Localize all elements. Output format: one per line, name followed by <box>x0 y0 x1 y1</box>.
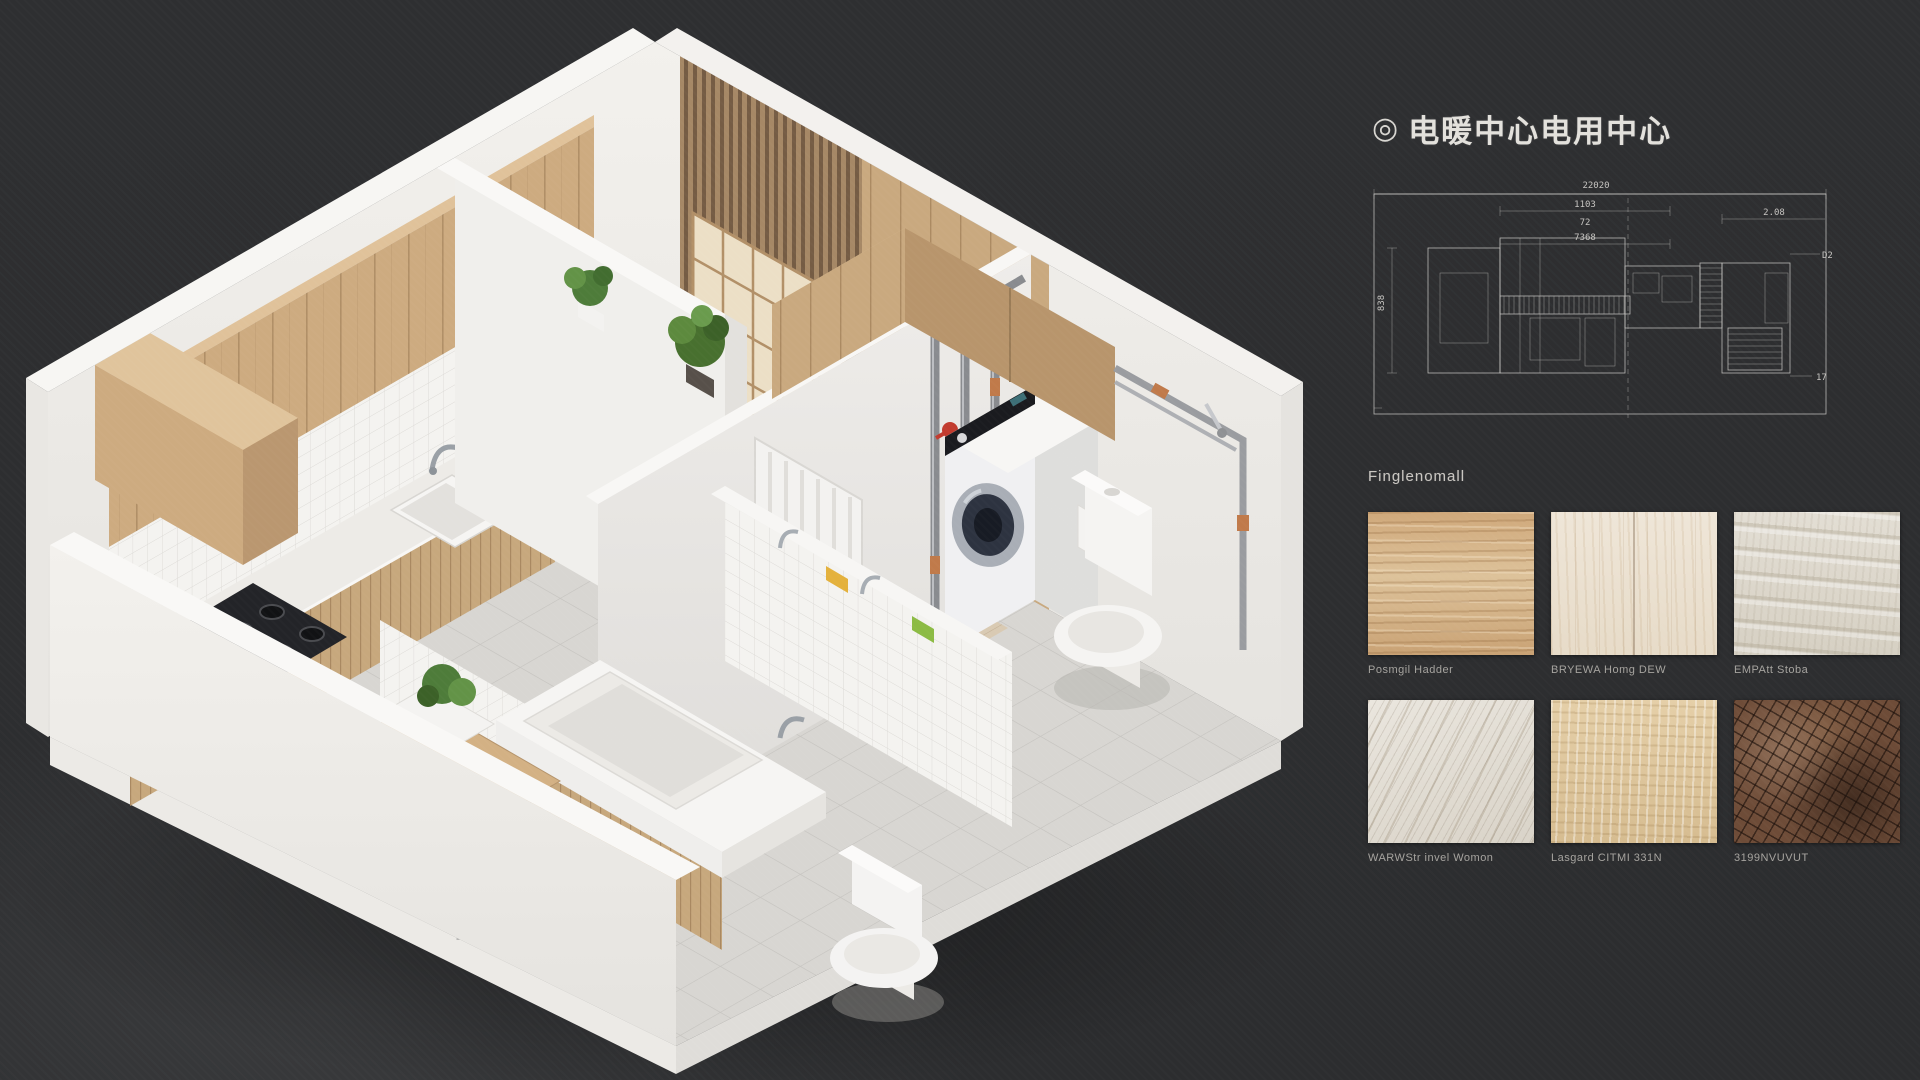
material-swatch-beige-stone <box>1551 700 1717 843</box>
material-card: 3199NVUVUT <box>1734 700 1900 864</box>
material-swatch-brown-mosaic <box>1734 700 1900 843</box>
dim-small: 17 <box>1816 373 1827 383</box>
material-card: WARWStr invel Womon <box>1368 700 1534 864</box>
material-swatch-grid: Posmgil Hadder BRYEWA Homg DEW EMPAtt St… <box>1368 512 1900 864</box>
panel-title-row: ◎ 电暖中心电用中心 <box>1372 106 1672 151</box>
material-swatch-travertine <box>1734 512 1900 655</box>
material-card: EMPAtt Stoba <box>1734 512 1900 676</box>
apartment-cutaway-svg <box>0 0 1340 1080</box>
floor-plan-blueprint: 22020 1103 72 7368 2.08 D2 838 17 <box>1370 178 1834 430</box>
isometric-apartment-render <box>0 0 1340 1080</box>
material-card: Lasgard CITMI 331N <box>1551 700 1717 864</box>
material-swatch-marble <box>1368 700 1534 843</box>
presentation-board: ◎ 电暖中心电用中心 22020 1103 72 7368 2.08 D2 83… <box>0 0 1920 1080</box>
material-card: BRYEWA Homg DEW <box>1551 512 1717 676</box>
material-caption: WARWStr invel Womon <box>1368 852 1534 864</box>
materials-section-label: Finglenomall <box>1368 468 1465 485</box>
page-title: 电暖中心电用中心 <box>1408 106 1672 151</box>
material-caption: Lasgard CITMI 331N <box>1551 852 1717 864</box>
material-caption: EMPAtt Stoba <box>1734 664 1900 676</box>
dim-right: 2.08 <box>1763 208 1785 218</box>
dim-top: 22020 <box>1582 181 1609 191</box>
material-caption: Posmgil Hadder <box>1368 664 1534 676</box>
dim-b: 72 <box>1580 218 1591 228</box>
plan-rooms <box>1374 198 1790 418</box>
circle-ring-icon: ◎ <box>1372 114 1398 144</box>
dim-tag: D2 <box>1822 251 1833 261</box>
material-swatch-oak-wood <box>1368 512 1534 655</box>
dim-left: 838 <box>1377 295 1387 311</box>
material-caption: BRYEWA Homg DEW <box>1551 664 1717 676</box>
dim-a: 1103 <box>1574 200 1596 210</box>
material-caption: 3199NVUVUT <box>1734 852 1900 864</box>
material-swatch-whitewashed-wood <box>1551 512 1717 655</box>
material-card: Posmgil Hadder <box>1368 512 1534 676</box>
